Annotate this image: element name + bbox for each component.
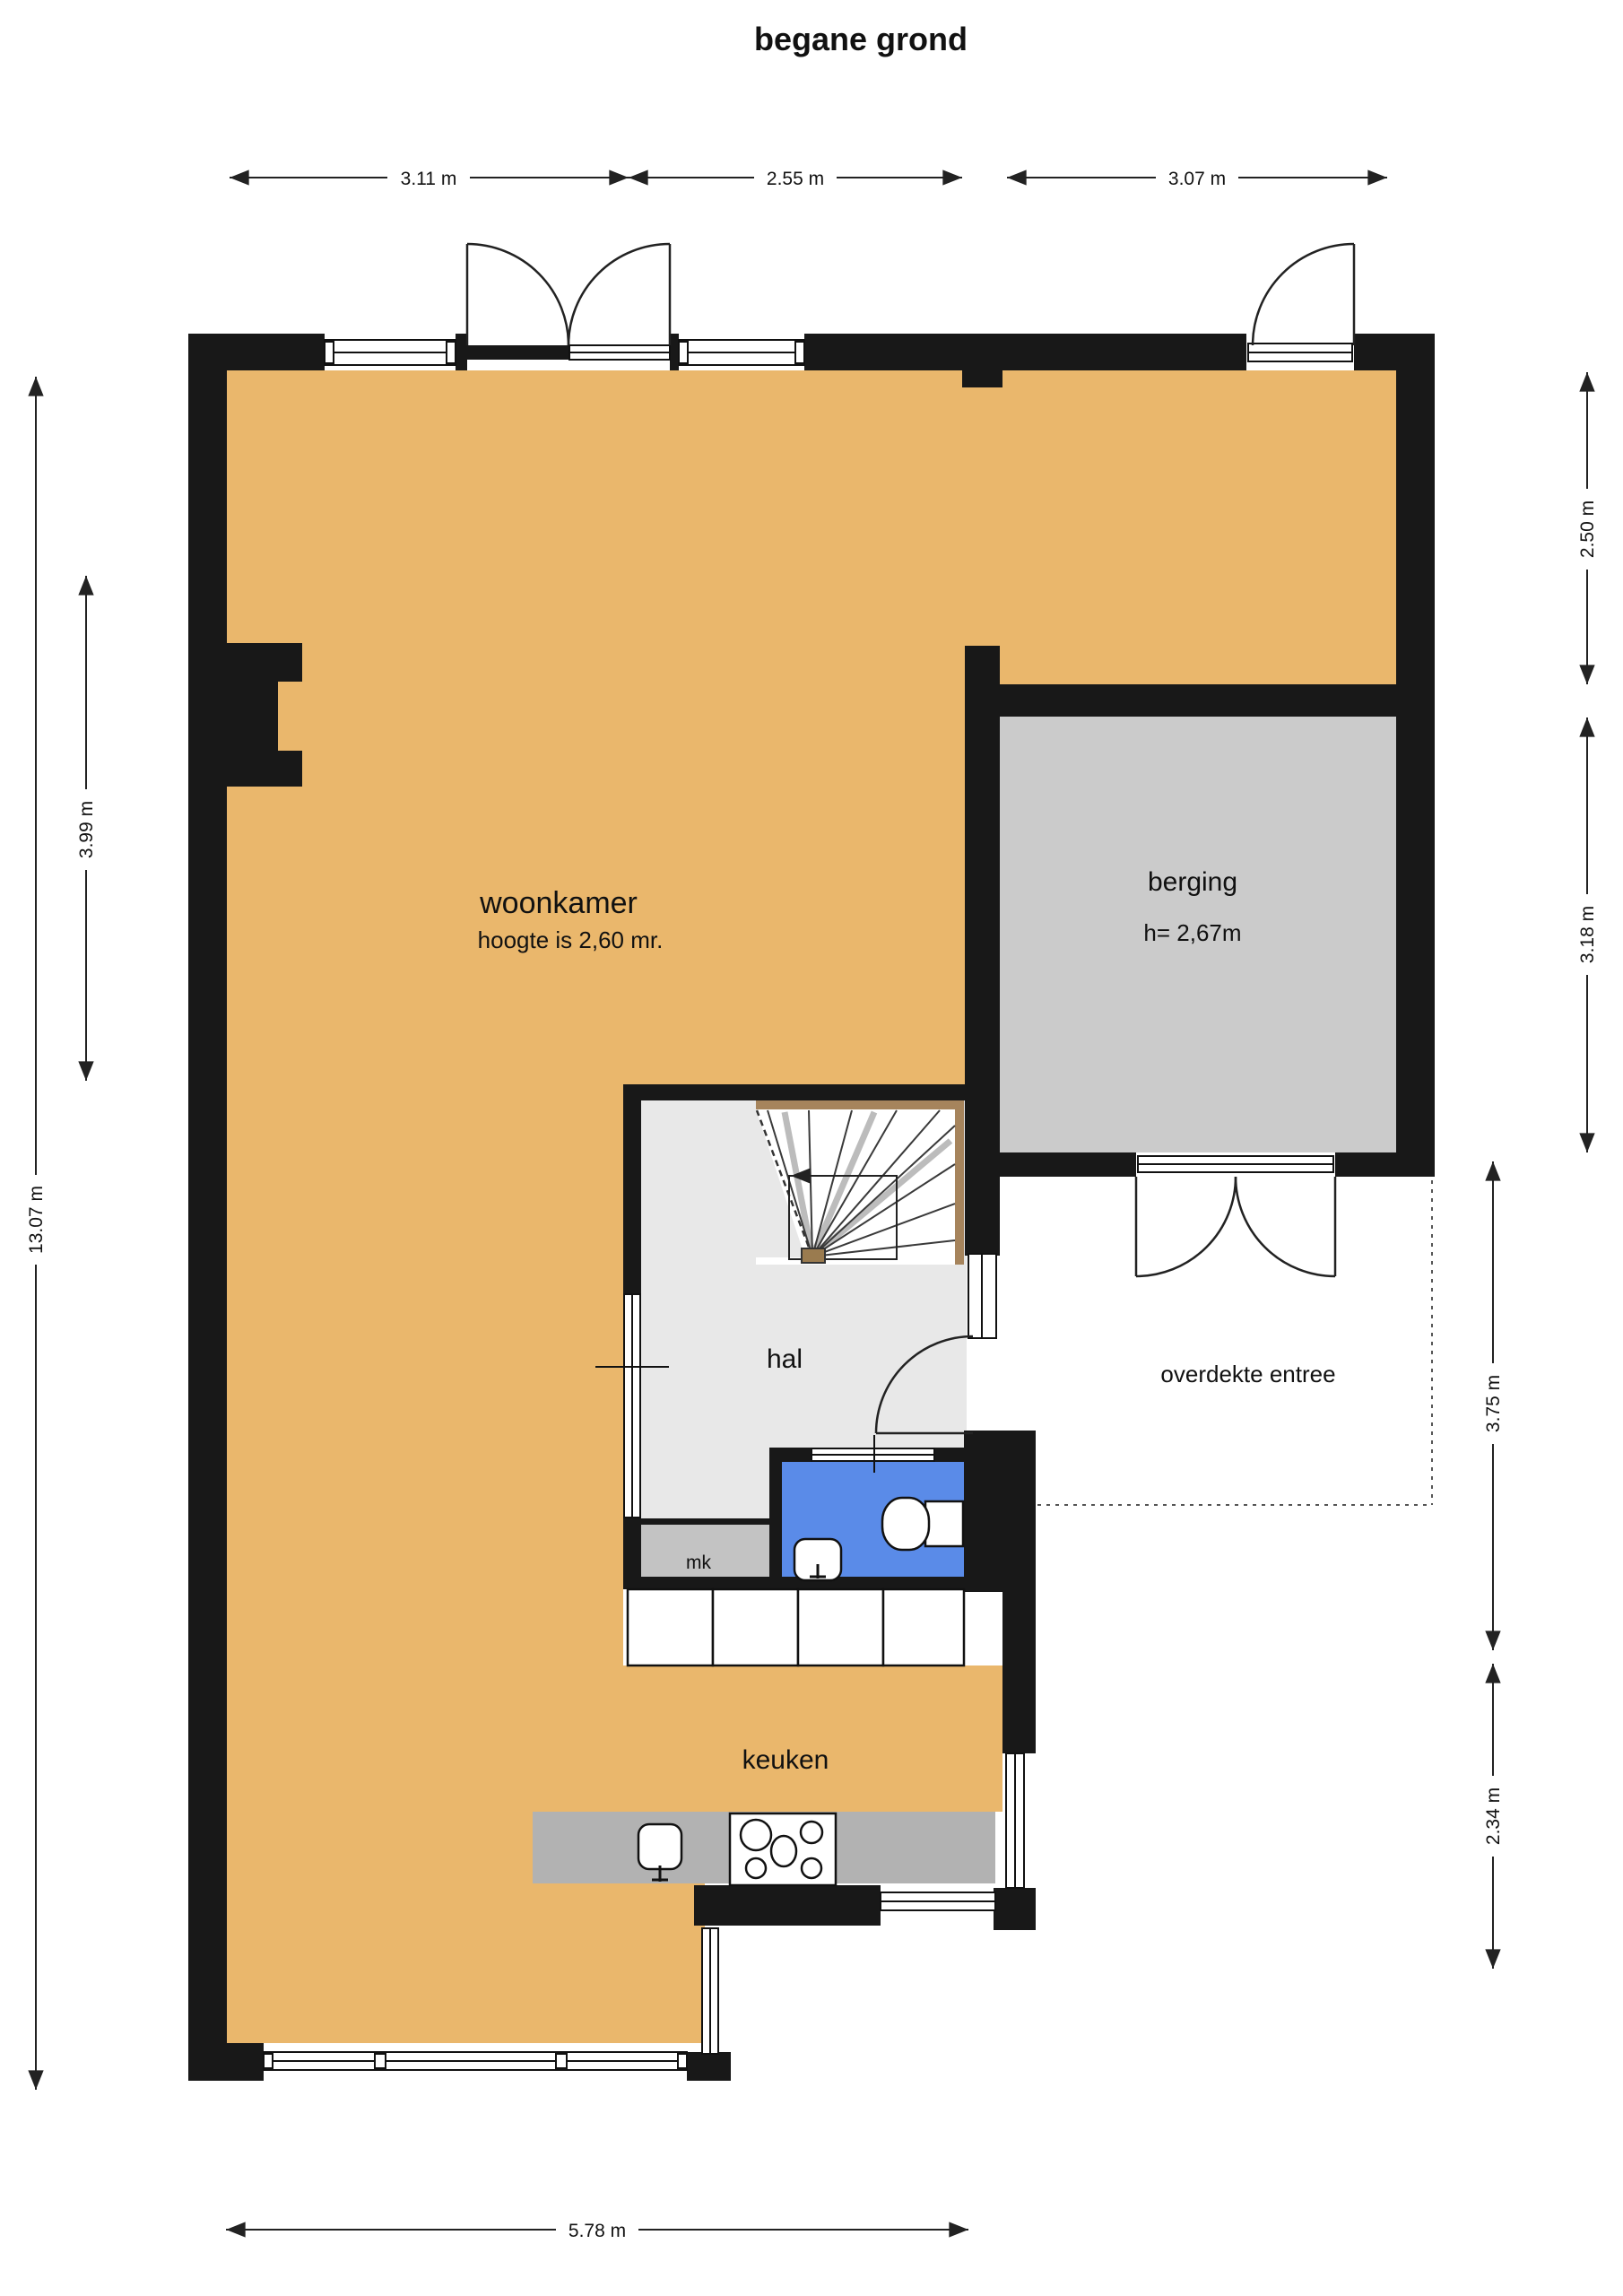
dim-right-keuken: 2.34 m <box>1483 1787 1504 1845</box>
window-keuken-rear <box>881 1892 995 1910</box>
wall-right-exterior <box>1396 334 1435 1177</box>
window-entry-side <box>968 1254 996 1338</box>
label-meterkast: mk <box>686 1552 711 1573</box>
wall-keuken-corner <box>994 1888 1036 1930</box>
dim-left-woonkamer: 3.99 m <box>76 801 97 858</box>
chimney-niche <box>278 682 302 751</box>
overdekte-entree-boundary <box>1037 1180 1432 1505</box>
wall-top-jamb-1 <box>456 334 467 370</box>
stair-newel-post <box>802 1248 825 1263</box>
dim-top-right: 3.07 m <box>1168 169 1226 189</box>
wall-hal-left-upper <box>623 1100 641 1294</box>
wall-left-exterior <box>188 334 227 2081</box>
window-top-2 <box>679 340 804 365</box>
staircase <box>756 1100 964 1265</box>
dim-top-left: 3.11 m <box>401 169 457 189</box>
wall-hal-top <box>623 1084 967 1100</box>
dim-left-overall: 13.07 m <box>26 1186 47 1254</box>
floor-woonkamer-left <box>227 1084 623 2043</box>
door-berging-exterior <box>1253 244 1354 345</box>
wall-berging-bottom-right <box>1335 1152 1435 1177</box>
door-berging-double <box>1136 1177 1335 1276</box>
label-woonkamer: woonkamer <box>479 886 638 920</box>
dim-right-berging: 3.18 m <box>1577 906 1598 963</box>
dim-right-upper: 2.50 m <box>1577 500 1598 558</box>
toilet-bowl <box>882 1498 929 1550</box>
floor-woonkamer-top-strip <box>227 370 1396 684</box>
wall-keuken-stub <box>694 1885 881 1926</box>
dim-right-entree: 3.75 m <box>1483 1375 1504 1432</box>
floorplan-canvas: woonkamer hoogte is 2,60 mr. berging h= … <box>0 0 1623 2296</box>
floor-keuken <box>623 1665 1002 1812</box>
washbasin <box>794 1539 841 1580</box>
floor-woonkamer-main <box>227 684 965 1084</box>
wall-partition-main <box>965 646 1000 1256</box>
window-top-1 <box>325 340 456 365</box>
label-berging-note: h= 2,67m <box>1143 919 1241 946</box>
wall-top-jamb-2 <box>670 334 679 370</box>
wall-toilet-top-right <box>934 1448 964 1462</box>
stair-trim-right <box>955 1100 964 1265</box>
wall-bottom-corner-left <box>188 2043 264 2081</box>
window-keuken-right <box>1006 1753 1024 1888</box>
window-bottom-band <box>264 2052 687 2070</box>
label-hal: hal <box>767 1344 803 1374</box>
toilet-cistern <box>925 1501 963 1546</box>
window-keuken-bay <box>702 1928 718 2054</box>
dim-top-middle: 2.55 m <box>767 169 824 189</box>
kitchen-cabinets <box>628 1589 964 1665</box>
dim-bottom: 5.78 m <box>568 2221 626 2241</box>
page-title: begane grond <box>754 21 968 57</box>
door-garden-double <box>467 244 670 345</box>
wall-entry-corner-block <box>964 1431 1002 1592</box>
wall-berging-top <box>965 684 1435 717</box>
window-entrance-threshold <box>1248 344 1352 361</box>
door-threshold-glazed-leaf <box>569 345 670 360</box>
stair-trim-top <box>756 1100 964 1109</box>
kitchen-hob <box>730 1813 836 1885</box>
window-berging-door-threshold <box>1138 1156 1333 1172</box>
wall-top-segment-1 <box>188 334 325 370</box>
label-overdekte-entree: overdekte entree <box>1160 1361 1335 1387</box>
door-threshold-closed-leaf <box>467 345 569 360</box>
wall-partition-stub <box>962 370 1002 387</box>
label-berging: berging <box>1148 867 1237 897</box>
label-keuken: keuken <box>742 1745 829 1775</box>
wall-toilet-bottom <box>623 1577 964 1589</box>
floorplan-page: woonkamer hoogte is 2,60 mr. berging h= … <box>0 0 1623 2296</box>
wall-toilet-top-left <box>769 1448 811 1462</box>
wall-toilet-left <box>769 1462 782 1577</box>
wall-right-lower <box>1002 1431 1036 1753</box>
label-woonkamer-note: hoogte is 2,60 mr. <box>478 926 664 953</box>
wall-top-segment-2 <box>804 334 1246 370</box>
wall-meterkast-top <box>641 1518 769 1525</box>
wall-bottom-corner-right <box>687 2052 731 2081</box>
